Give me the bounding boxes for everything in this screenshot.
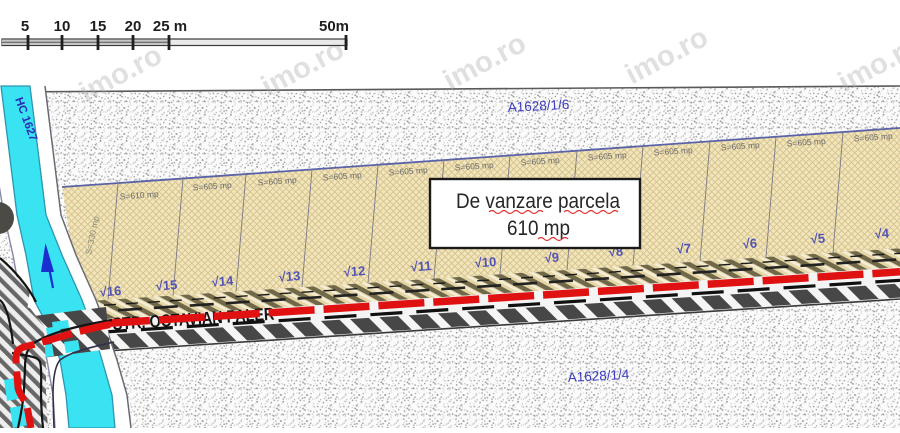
svg-text:10: 10 — [54, 18, 71, 35]
svg-text:De vanzare parcela: De vanzare parcela — [456, 190, 620, 213]
svg-text:√6: √6 — [742, 236, 757, 252]
svg-text:√7: √7 — [676, 241, 691, 257]
svg-text:√15: √15 — [155, 277, 178, 293]
svg-text:√5: √5 — [810, 231, 825, 247]
svg-text:√12: √12 — [343, 263, 366, 279]
svg-text:√9: √9 — [544, 250, 559, 266]
svg-text:5: 5 — [21, 18, 29, 35]
svg-text:√16: √16 — [99, 283, 122, 299]
svg-text:610 mp: 610 mp — [507, 217, 570, 240]
svg-text:√14: √14 — [211, 273, 234, 290]
svg-text:20: 20 — [125, 18, 142, 35]
svg-text:√10: √10 — [474, 254, 497, 270]
svg-text:50m: 50m — [319, 18, 349, 35]
svg-text:√13: √13 — [278, 268, 301, 284]
svg-text:√4: √4 — [874, 225, 890, 241]
svg-text:25 m: 25 m — [153, 18, 187, 35]
svg-text:√11: √11 — [410, 258, 432, 274]
svg-text:15: 15 — [90, 18, 107, 35]
